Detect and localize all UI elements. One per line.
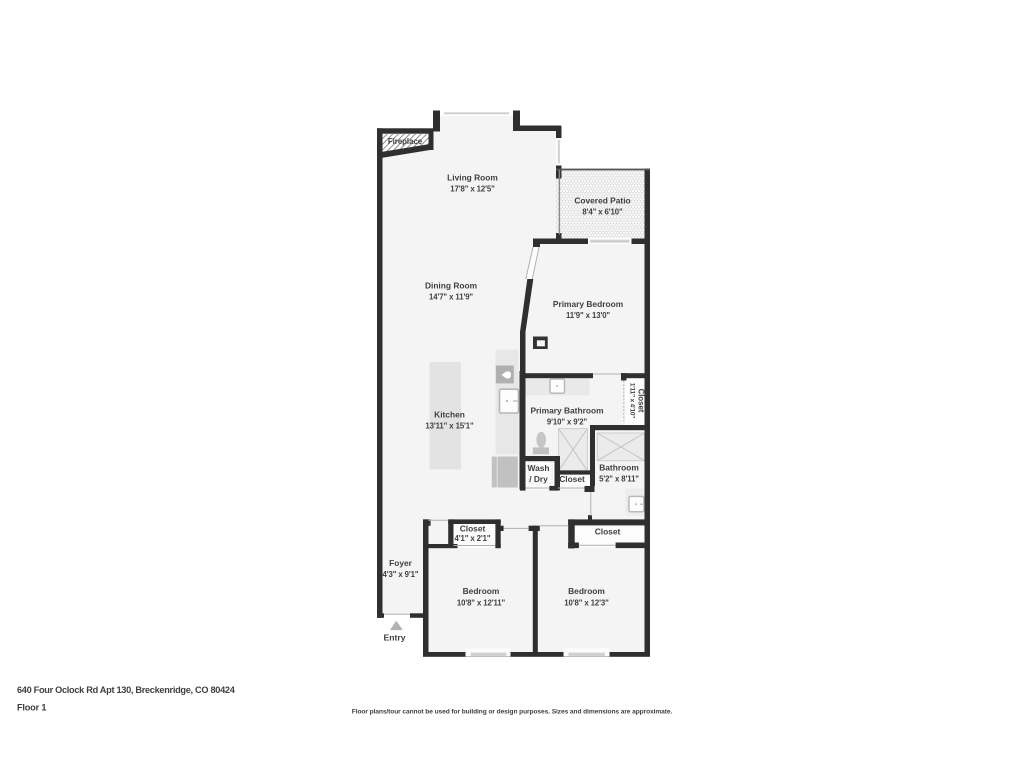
svg-text:13'11" x 15'1": 13'11" x 15'1" xyxy=(425,422,474,431)
svg-text:11'9" x 13'0": 11'9" x 13'0" xyxy=(566,311,610,320)
svg-text:Floor 1: Floor 1 xyxy=(17,703,46,713)
svg-text:Closet: Closet xyxy=(460,524,486,534)
svg-text:/ Dry: / Dry xyxy=(529,474,548,484)
svg-text:Closet: Closet xyxy=(595,527,621,537)
svg-text:Primary Bathroom: Primary Bathroom xyxy=(530,406,603,416)
svg-text:Floor plans/tour cannot be use: Floor plans/tour cannot be used for buil… xyxy=(352,709,673,716)
svg-text:Covered Patio: Covered Patio xyxy=(574,196,630,206)
svg-text:10'8" x 12'11": 10'8" x 12'11" xyxy=(457,599,506,608)
svg-text:Bedroom: Bedroom xyxy=(568,586,605,596)
svg-text:9'10" x 9'2": 9'10" x 9'2" xyxy=(547,418,588,427)
svg-text:5'2" x 8'11": 5'2" x 8'11" xyxy=(599,475,639,484)
svg-text:17'8" x 12'5": 17'8" x 12'5" xyxy=(450,185,495,194)
svg-text:4'3" x 9'1": 4'3" x 9'1" xyxy=(382,570,418,579)
svg-text:Closet: Closet xyxy=(636,389,645,413)
svg-text:Bedroom: Bedroom xyxy=(463,586,500,596)
svg-text:Fireplace: Fireplace xyxy=(388,137,423,146)
svg-text:14'7" x 11'9": 14'7" x 11'9" xyxy=(429,293,473,302)
svg-text:8'4" x 6'10": 8'4" x 6'10" xyxy=(582,208,623,217)
svg-text:Dining Room: Dining Room xyxy=(425,281,477,291)
svg-text:640 Four Oclock Rd Apt 130, Br: 640 Four Oclock Rd Apt 130, Breckenridge… xyxy=(17,685,236,695)
svg-text:Closet: Closet xyxy=(559,474,585,484)
svg-text:4'1" x 2'1": 4'1" x 2'1" xyxy=(454,534,490,543)
svg-text:10'8" x 12'3": 10'8" x 12'3" xyxy=(564,599,609,608)
svg-text:Kitchen: Kitchen xyxy=(434,410,465,420)
svg-text:Wash: Wash xyxy=(527,463,549,473)
svg-text:Entry: Entry xyxy=(384,633,406,643)
svg-text:Foyer: Foyer xyxy=(389,558,413,568)
svg-text:Primary Bedroom: Primary Bedroom xyxy=(553,299,623,309)
svg-text:Bathroom: Bathroom xyxy=(599,463,639,473)
svg-text:1'11" x 4'10": 1'11" x 4'10" xyxy=(628,383,635,418)
svg-text:Living Room: Living Room xyxy=(447,173,498,183)
